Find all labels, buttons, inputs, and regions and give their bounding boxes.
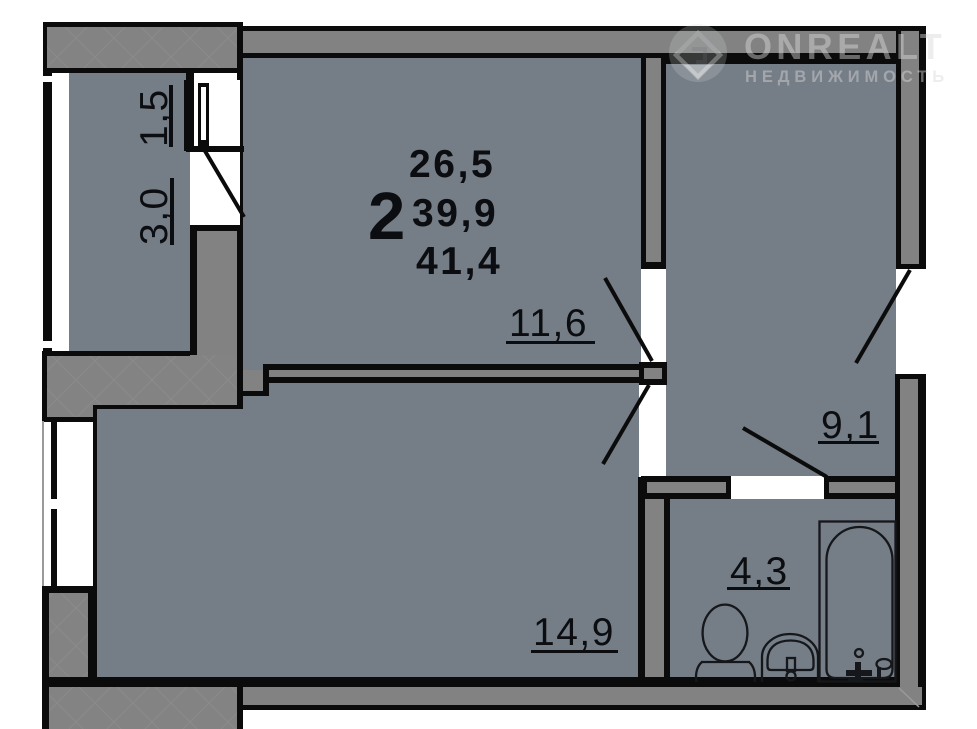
svg-text:14,9: 14,9 (533, 611, 615, 654)
svg-text:4,3: 4,3 (730, 550, 789, 593)
svg-text:41,4: 41,4 (416, 240, 502, 283)
svg-text:2: 2 (368, 179, 405, 254)
svg-text:11,6: 11,6 (509, 302, 588, 345)
svg-text:НЕДВИЖИМОСТЬ: НЕДВИЖИМОСТЬ (745, 68, 949, 86)
svg-text:ONREALT: ONREALT (744, 26, 946, 67)
svg-text:26,5: 26,5 (409, 143, 495, 186)
svg-text:39,9: 39,9 (412, 192, 498, 235)
svg-text:3,0: 3,0 (133, 186, 176, 245)
svg-text:9,1: 9,1 (821, 404, 880, 447)
